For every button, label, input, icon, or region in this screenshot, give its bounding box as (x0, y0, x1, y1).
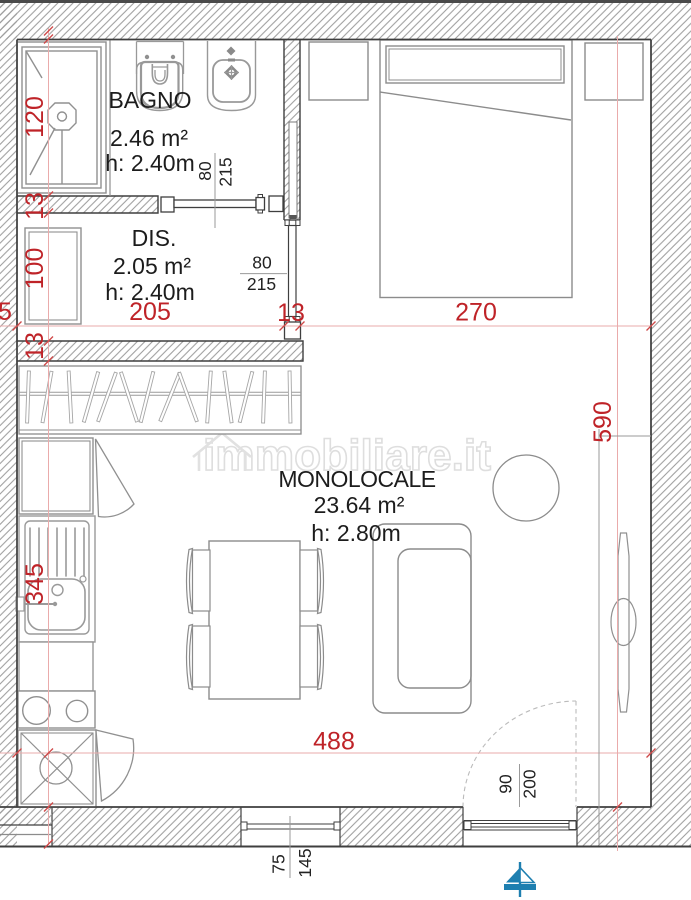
svg-text:120: 120 (21, 96, 49, 138)
svg-text:270: 270 (455, 299, 497, 327)
svg-text:5: 5 (0, 298, 12, 326)
svg-text:100: 100 (21, 248, 49, 290)
svg-text:590: 590 (589, 401, 617, 443)
svg-text:80: 80 (195, 161, 215, 181)
svg-text:205: 205 (129, 298, 171, 326)
svg-text:215: 215 (216, 157, 236, 186)
svg-text:90: 90 (496, 774, 516, 794)
svg-text:h: 2.80m: h: 2.80m (311, 520, 401, 546)
svg-text:23.64 m²: 23.64 m² (314, 492, 405, 518)
svg-text:h: 2.40m: h: 2.40m (105, 150, 195, 176)
svg-text:13: 13 (277, 299, 305, 327)
svg-text:215: 215 (247, 274, 276, 294)
svg-text:345: 345 (21, 563, 49, 605)
svg-text:BAGNO: BAGNO (108, 87, 191, 113)
svg-text:DIS.: DIS. (132, 225, 177, 251)
svg-text:75: 75 (269, 854, 289, 873)
svg-text:2.46 m²: 2.46 m² (110, 125, 188, 151)
svg-text:2.05 m²: 2.05 m² (113, 253, 191, 279)
svg-text:13: 13 (21, 332, 49, 360)
svg-text:488: 488 (313, 728, 355, 756)
svg-text:MONOLOCALE: MONOLOCALE (278, 466, 435, 492)
svg-text:200: 200 (520, 769, 540, 798)
svg-text:13: 13 (21, 192, 49, 220)
svg-text:80: 80 (252, 253, 272, 273)
svg-text:145: 145 (295, 848, 315, 877)
